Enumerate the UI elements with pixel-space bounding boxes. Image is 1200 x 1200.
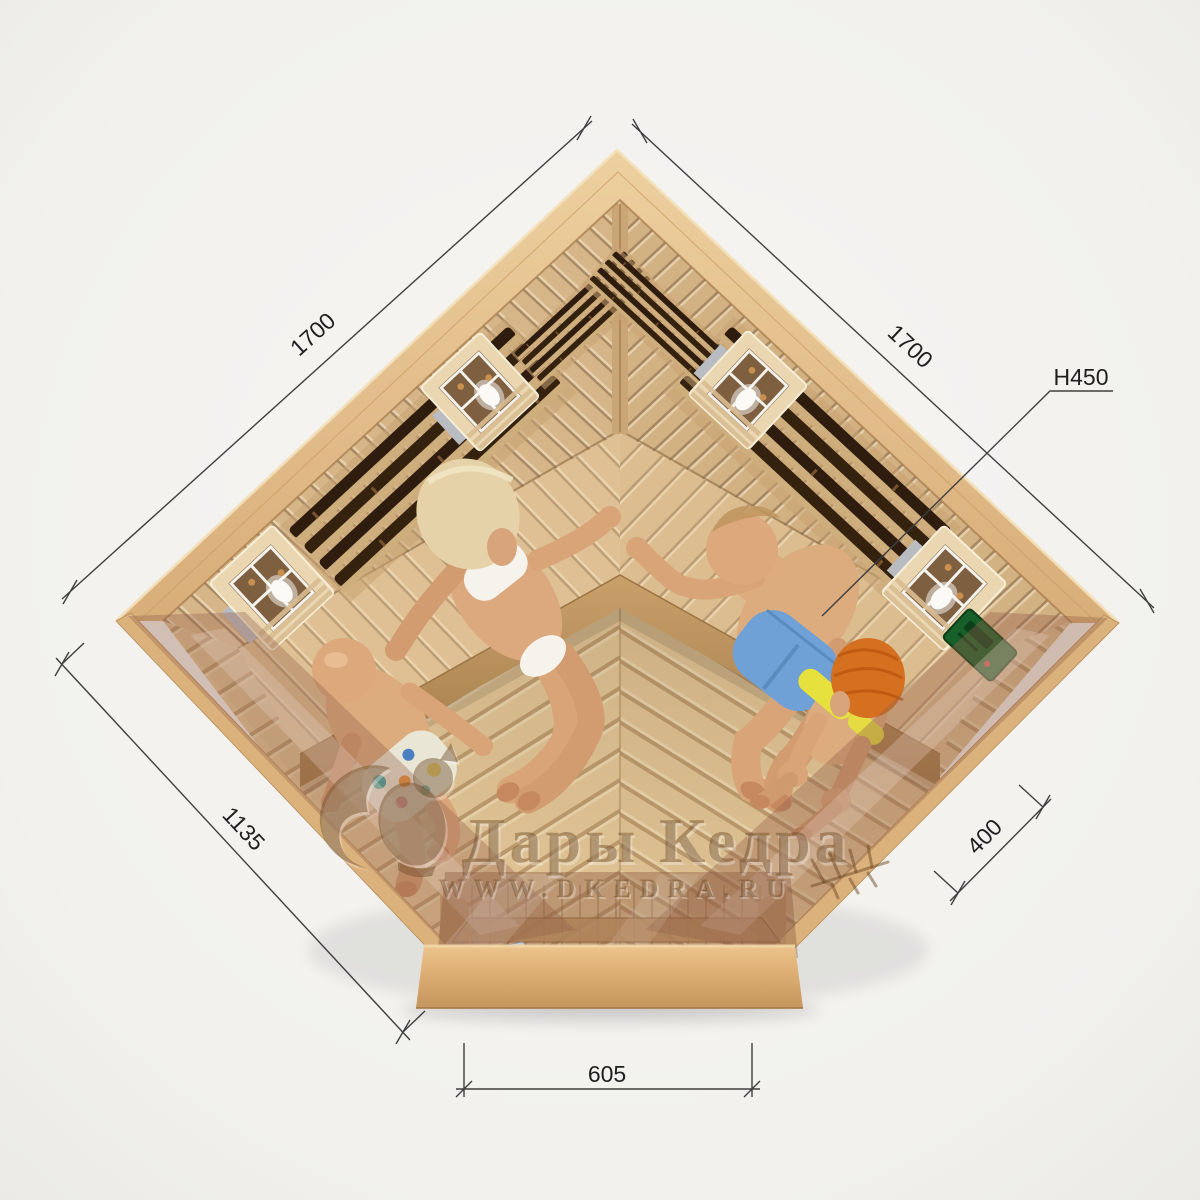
dimension-label-door-width: 605 [588, 1061, 626, 1087]
screenshot-root: Дары Кедра Дары Кедра WWW.DKEDRA.RU WWW.… [0, 0, 1200, 1200]
watermark-website: WWW.DKEDRA.RU [438, 874, 794, 903]
base-platform [400, 946, 820, 1023]
head-shine [324, 652, 348, 668]
sauna-top-view-render: Дары Кедра Дары Кедра WWW.DKEDRA.RU WWW.… [0, 0, 1200, 1200]
face [487, 528, 517, 566]
dimension-label-height: H450 [1054, 364, 1109, 390]
face [830, 691, 850, 717]
watermark-brand: Дары Кедра [461, 805, 850, 876]
